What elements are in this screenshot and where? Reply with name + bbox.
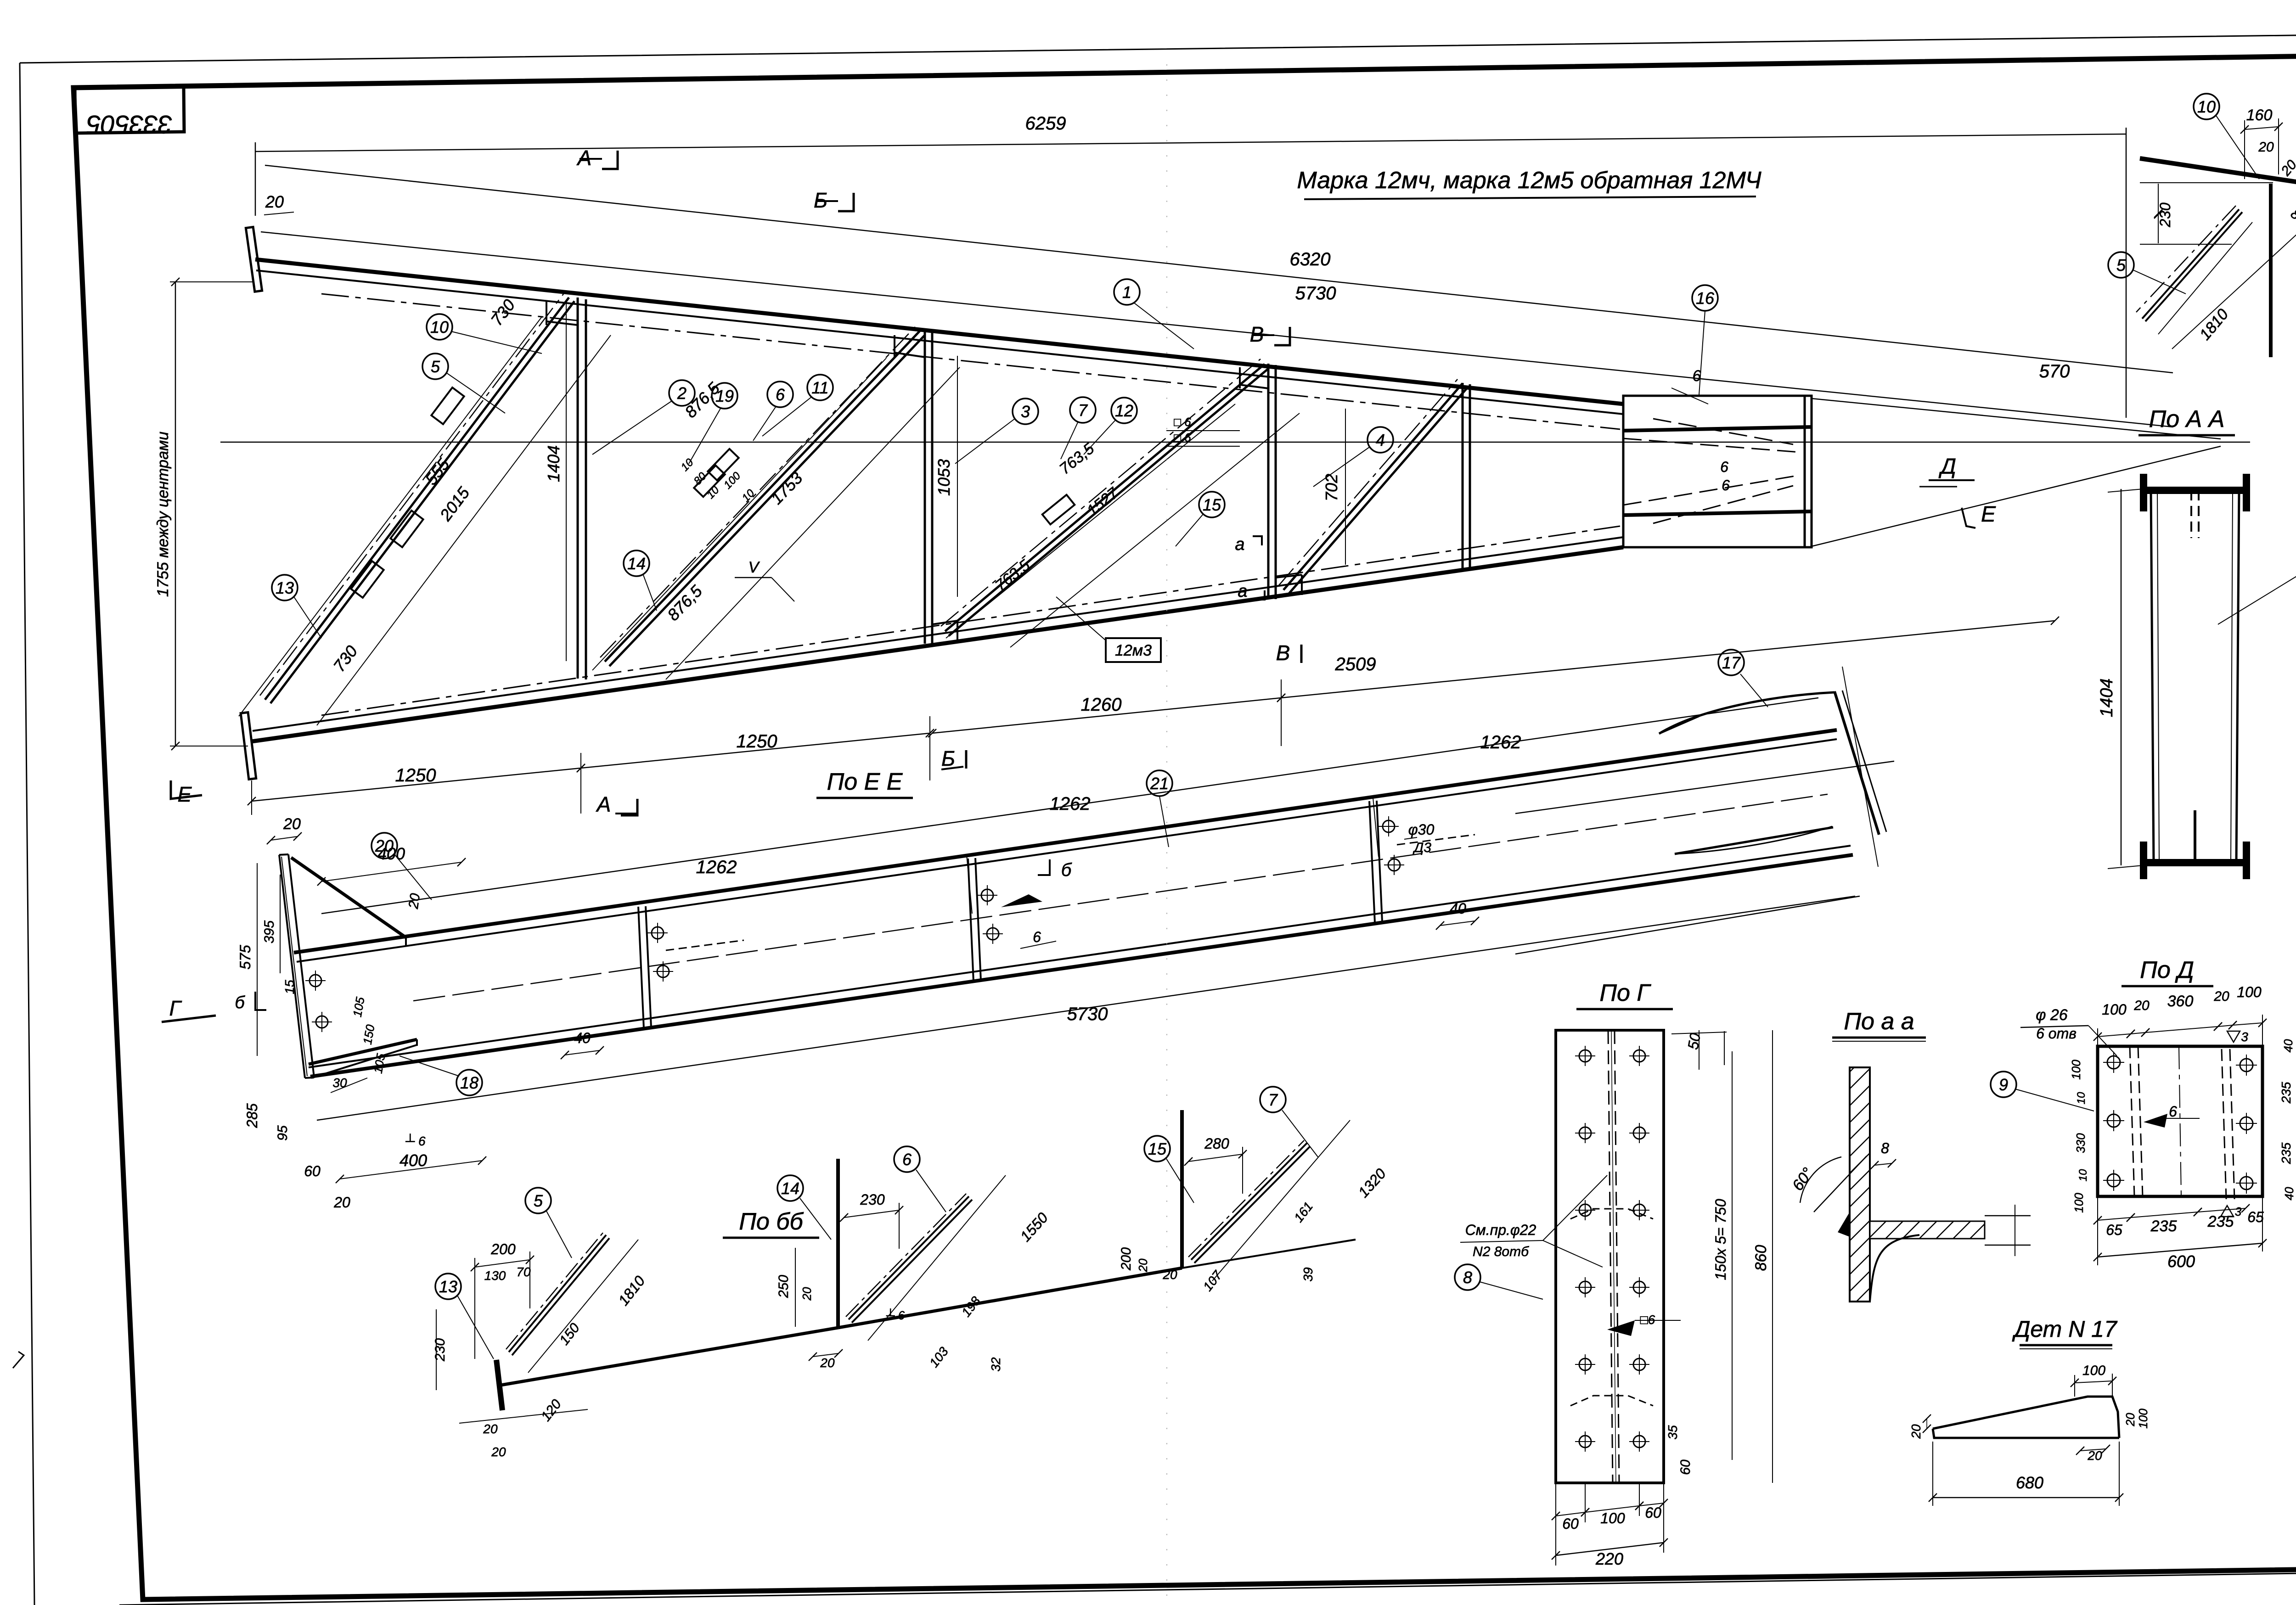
svg-text:17: 17 (1722, 653, 1741, 672)
svg-text:20: 20 (491, 1445, 506, 1459)
svg-text:14: 14 (627, 554, 646, 573)
svg-text:12м3: 12м3 (1115, 642, 1152, 659)
svg-text:б: б (1061, 860, 1072, 880)
svg-text:19: 19 (715, 387, 734, 405)
svg-text:□ 6: □ 6 (1174, 415, 1191, 429)
svg-text:20: 20 (2258, 140, 2274, 155)
svg-text:Б: Б (941, 746, 955, 770)
svg-text:14: 14 (781, 1179, 799, 1198)
svg-text:7: 7 (1268, 1090, 1278, 1109)
svg-text:16: 16 (1696, 289, 1715, 308)
svg-text:В: В (1276, 641, 1290, 665)
svg-text:39: 39 (1301, 1267, 1315, 1281)
svg-text:2509: 2509 (1335, 654, 1376, 674)
svg-text:21: 21 (1150, 774, 1169, 793)
svg-text:50: 50 (1684, 1032, 1704, 1051)
svg-text:230: 230 (433, 1338, 448, 1362)
svg-text:100: 100 (1600, 1510, 1625, 1526)
svg-text:600: 600 (2167, 1252, 2195, 1271)
svg-text:235: 235 (2279, 1082, 2293, 1104)
svg-text:20: 20 (800, 1287, 814, 1301)
svg-text:6: 6 (776, 385, 785, 404)
svg-text:a: a (1235, 535, 1244, 554)
svg-text:235: 235 (2279, 1142, 2293, 1164)
svg-text:1755 между центрами: 1755 между центрами (154, 432, 172, 597)
svg-text:E: E (1981, 502, 1996, 527)
svg-text:5730: 5730 (1067, 1004, 1108, 1024)
svg-text:20: 20 (2213, 989, 2229, 1004)
svg-text:6: 6 (1033, 929, 1041, 945)
svg-text:10: 10 (2075, 1092, 2088, 1104)
svg-text:20: 20 (406, 892, 423, 910)
svg-text:333505: 333505 (86, 110, 173, 139)
svg-text:40: 40 (1450, 900, 1466, 917)
svg-text:Д: Д (1938, 455, 1956, 479)
svg-text:б: б (235, 993, 245, 1012)
svg-text:11: 11 (811, 378, 828, 397)
svg-text:20: 20 (2133, 998, 2150, 1013)
svg-text:1262: 1262 (1050, 794, 1091, 814)
svg-text:230: 230 (2157, 202, 2173, 228)
svg-text:100: 100 (2082, 1363, 2105, 1378)
svg-text:150х 5= 750: 150х 5= 750 (1712, 1199, 1729, 1280)
svg-text:20: 20 (820, 1356, 835, 1370)
svg-text:a: a (1238, 582, 1247, 601)
svg-text:220: 220 (1595, 1549, 1623, 1568)
svg-text:100: 100 (2136, 1409, 2150, 1429)
svg-text:10: 10 (2197, 97, 2216, 116)
svg-text:N2 8отб: N2 8отб (1473, 1244, 1529, 1259)
svg-text:Г: Г (169, 996, 182, 1020)
svg-text:400: 400 (400, 1151, 427, 1170)
svg-text:1404: 1404 (2097, 679, 2116, 718)
svg-text:95: 95 (275, 1125, 290, 1141)
svg-text:2: 2 (677, 384, 687, 403)
svg-text:1: 1 (1122, 283, 1131, 302)
svg-text:702: 702 (1322, 474, 1341, 501)
svg-text:По a a: По a a (1844, 1008, 1914, 1035)
svg-text:60: 60 (1678, 1459, 1693, 1475)
svg-text:5: 5 (431, 357, 440, 376)
svg-text:65: 65 (2247, 1209, 2264, 1225)
svg-text:20: 20 (333, 1194, 350, 1211)
svg-text:30: 30 (332, 1076, 347, 1090)
svg-text:575: 575 (237, 945, 253, 970)
svg-text:См.пр.φ22: См.пр.φ22 (1465, 1222, 1536, 1238)
svg-text:35: 35 (1666, 1425, 1680, 1440)
svg-text:1262: 1262 (696, 857, 737, 877)
svg-text:3: 3 (2235, 1205, 2242, 1218)
svg-text:235: 235 (2207, 1213, 2234, 1230)
svg-text:По А А: По А А (2149, 406, 2225, 432)
svg-text:160: 160 (2246, 107, 2273, 124)
svg-text:3: 3 (1021, 402, 1030, 421)
svg-text:570: 570 (2039, 361, 2070, 382)
svg-text:6: 6 (1722, 477, 1730, 494)
svg-text:8: 8 (1463, 1268, 1472, 1287)
svg-text:6: 6 (2169, 1103, 2177, 1120)
svg-text:φ 26: φ 26 (2036, 1006, 2068, 1024)
svg-text:10: 10 (2077, 1169, 2089, 1181)
svg-text:100: 100 (2237, 984, 2262, 1000)
svg-text:1250: 1250 (395, 765, 436, 786)
svg-text:20: 20 (2087, 1448, 2102, 1463)
svg-text:9: 9 (1999, 1075, 2008, 1094)
svg-text:Марка 12мч, марка 12м5 обратна: Марка 12мч, марка 12м5 обратная 12МЧ (1297, 167, 1761, 194)
svg-text:1053: 1053 (934, 459, 953, 496)
svg-text:E: E (178, 782, 192, 806)
svg-text:40: 40 (2282, 1187, 2296, 1200)
svg-text:70: 70 (516, 1265, 531, 1279)
svg-text:20: 20 (1136, 1258, 1150, 1272)
svg-text:13: 13 (276, 578, 294, 597)
svg-text:3: 3 (2241, 1030, 2248, 1044)
svg-text:15: 15 (282, 980, 297, 994)
svg-text:15: 15 (1203, 495, 1221, 514)
svg-text:12: 12 (1115, 401, 1133, 420)
svg-text:5: 5 (2116, 256, 2126, 275)
svg-text:□6: □6 (1640, 1313, 1655, 1327)
svg-text:По Г: По Г (1599, 980, 1651, 1006)
svg-text:18: 18 (460, 1073, 478, 1092)
svg-text:15: 15 (1148, 1139, 1167, 1158)
svg-text:1250: 1250 (737, 731, 777, 752)
svg-text:φ30: φ30 (1408, 821, 1435, 838)
svg-text:┴ 6: ┴ 6 (405, 1134, 426, 1148)
svg-text:20: 20 (1909, 1424, 1923, 1439)
svg-text:40: 40 (2281, 1039, 2295, 1052)
svg-text:Д3: Д3 (1412, 840, 1431, 855)
svg-text:100: 100 (2072, 1193, 2086, 1213)
svg-text:60: 60 (1562, 1515, 1579, 1532)
svg-text:100: 100 (2102, 1001, 2127, 1018)
svg-text:20: 20 (265, 192, 284, 211)
svg-text:200: 200 (1119, 1247, 1134, 1271)
svg-text:13: 13 (439, 1277, 457, 1296)
svg-text:6: 6 (902, 1150, 912, 1169)
svg-text:100: 100 (2069, 1060, 2083, 1080)
svg-text:По E E: По E E (827, 769, 903, 795)
svg-text:6: 6 (1720, 459, 1728, 475)
svg-text:40: 40 (574, 1030, 591, 1046)
svg-text:А: А (596, 792, 611, 816)
svg-text:60: 60 (1645, 1504, 1661, 1521)
svg-text:360: 360 (2167, 993, 2194, 1010)
svg-text:395: 395 (262, 920, 277, 943)
svg-text:230: 230 (860, 1191, 885, 1208)
svg-text:285: 285 (244, 1103, 260, 1128)
svg-text:860: 860 (1752, 1245, 1770, 1271)
svg-text:20: 20 (375, 836, 394, 855)
svg-text:6259: 6259 (1025, 113, 1066, 134)
svg-text:□ 6: □ 6 (1174, 431, 1191, 444)
svg-text:V: V (748, 559, 760, 576)
svg-text:7: 7 (1078, 401, 1088, 420)
svg-text:5730: 5730 (1295, 283, 1336, 303)
svg-text:65: 65 (2106, 1222, 2122, 1238)
svg-text:32: 32 (989, 1357, 1003, 1372)
svg-text:1260: 1260 (1081, 695, 1122, 715)
svg-text:20: 20 (2123, 1413, 2137, 1426)
svg-text:250: 250 (776, 1275, 791, 1298)
svg-text:8: 8 (1881, 1140, 1889, 1156)
svg-text:280: 280 (1204, 1135, 1229, 1152)
svg-text:4: 4 (1376, 431, 1385, 449)
svg-text:Дет N 17: Дет N 17 (2012, 1316, 2118, 1342)
svg-text:20: 20 (1162, 1268, 1177, 1282)
svg-text:60: 60 (304, 1163, 321, 1179)
svg-text:130: 130 (484, 1268, 506, 1283)
svg-text:5: 5 (534, 1191, 543, 1210)
svg-text:330: 330 (2074, 1133, 2088, 1153)
svg-text:20: 20 (283, 815, 301, 833)
svg-text:По Д: По Д (2140, 957, 2194, 983)
svg-text:200: 200 (490, 1241, 516, 1257)
svg-text:┴ 6: ┴ 6 (886, 1308, 905, 1322)
svg-text:По бб: По бб (739, 1208, 804, 1235)
svg-text:1262: 1262 (1480, 732, 1521, 752)
svg-text:6 отв: 6 отв (2036, 1025, 2077, 1042)
svg-text:10: 10 (430, 318, 449, 337)
svg-text:20: 20 (483, 1422, 498, 1436)
svg-text:6320: 6320 (1290, 249, 1331, 269)
svg-text:680: 680 (2016, 1473, 2043, 1492)
svg-text:1404: 1404 (544, 445, 563, 482)
svg-text:235: 235 (2150, 1218, 2177, 1235)
